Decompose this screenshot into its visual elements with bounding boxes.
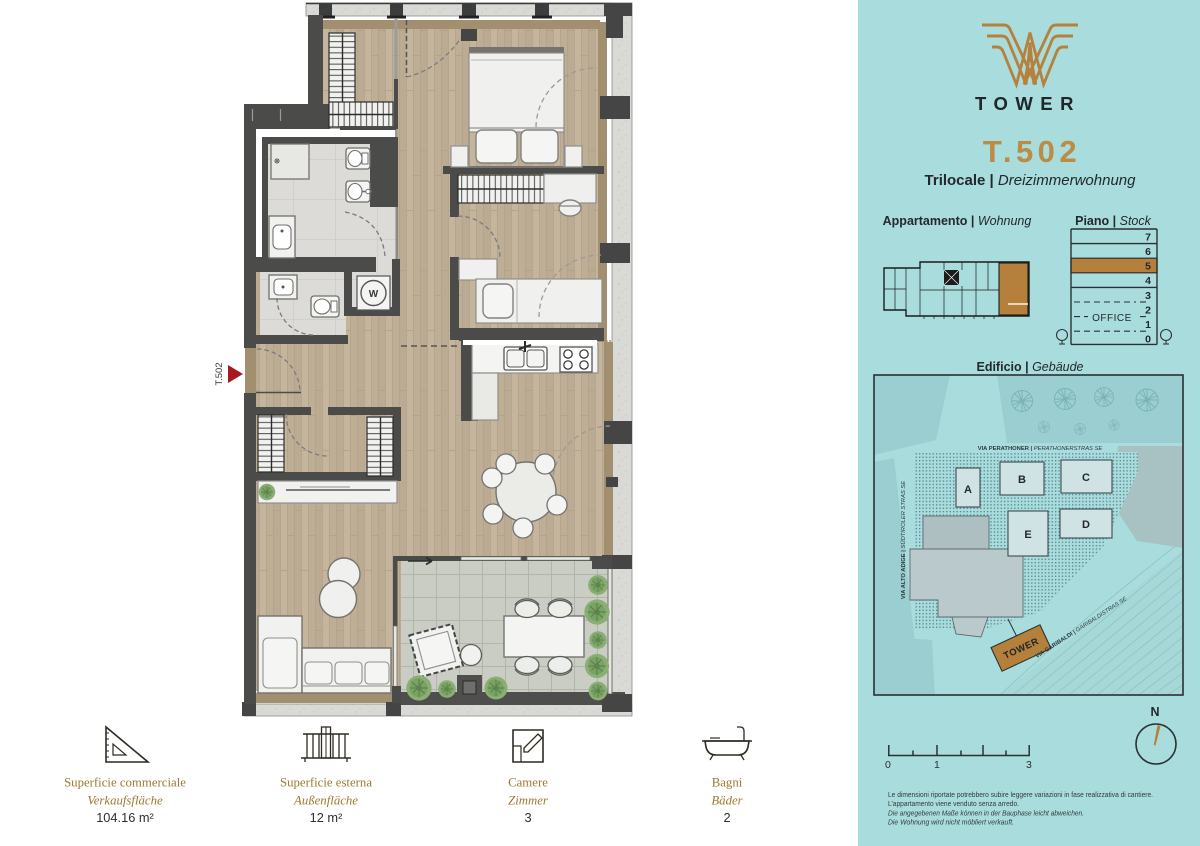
svg-text:7: 7 [1145,232,1151,244]
svg-text:Bagni: Bagni [712,776,743,790]
svg-text:T.502: T.502 [983,134,1081,169]
svg-text:W: W [369,289,379,300]
svg-text:VIA ALTO ADIGE | SÜDTIROLER ST: VIA ALTO ADIGE | SÜDTIROLER STRAS SE [900,481,907,599]
svg-text:OFFICE: OFFICE [1092,313,1132,324]
svg-text:L’appartamento viene venduto s: L’appartamento viene venduto senza arred… [888,799,1019,808]
svg-text:0: 0 [1145,334,1151,346]
svg-text:3: 3 [1026,759,1032,771]
svg-text:1: 1 [1145,319,1151,331]
svg-text:E: E [1024,529,1031,541]
svg-text:Trilocale | Dreizimmerwohnung: Trilocale | Dreizimmerwohnung [925,172,1137,189]
svg-text:Die angegebenen Maße können in: Die angegebenen Maße können in der Bauph… [888,809,1084,818]
svg-text:D: D [1082,519,1090,531]
svg-text:T.502: T.502 [214,362,225,385]
svg-text:2: 2 [1145,304,1151,316]
svg-text:Superficie commerciale: Superficie commerciale [64,776,186,790]
svg-text:C: C [1082,472,1090,484]
svg-text:TOWER: TOWER [975,93,1081,114]
svg-text:2: 2 [723,810,730,825]
svg-text:Superficie esterna: Superficie esterna [280,776,372,790]
svg-text:6: 6 [1145,246,1151,258]
svg-text:5: 5 [1145,261,1151,273]
svg-text:Piano | Stock: Piano | Stock [1075,214,1151,228]
svg-text:3: 3 [1145,290,1151,302]
svg-text:Verkaufsfläche: Verkaufsfläche [87,794,163,808]
svg-text:Außenfläche: Außenfläche [293,794,358,808]
svg-text:12 m²: 12 m² [310,810,343,825]
svg-text:0: 0 [885,759,891,771]
svg-text:4: 4 [1145,275,1151,287]
svg-text:1: 1 [934,759,940,771]
svg-text:Die Wohnung wird nicht möblier: Die Wohnung wird nicht möbliert verkauft… [888,818,1014,827]
svg-text:Zimmer: Zimmer [508,794,549,808]
svg-text:N: N [1150,705,1159,719]
svg-text:Appartamento | Wohnung: Appartamento | Wohnung [883,214,1032,228]
svg-text:Bäder: Bäder [711,794,743,808]
svg-text:A: A [964,484,972,496]
svg-text:VIA PERATHONER | PERATHONERSTR: VIA PERATHONER | PERATHONERSTRAS SE [978,446,1103,452]
svg-text:B: B [1018,474,1026,486]
svg-text:104.16 m²: 104.16 m² [96,810,154,825]
svg-text:Le dimensioni riportate potreb: Le dimensioni riportate potrebbero subir… [888,790,1153,799]
svg-text:3: 3 [524,810,531,825]
svg-text:Camere: Camere [508,776,548,790]
svg-text:Edificio | Gebäude: Edificio | Gebäude [976,360,1083,374]
